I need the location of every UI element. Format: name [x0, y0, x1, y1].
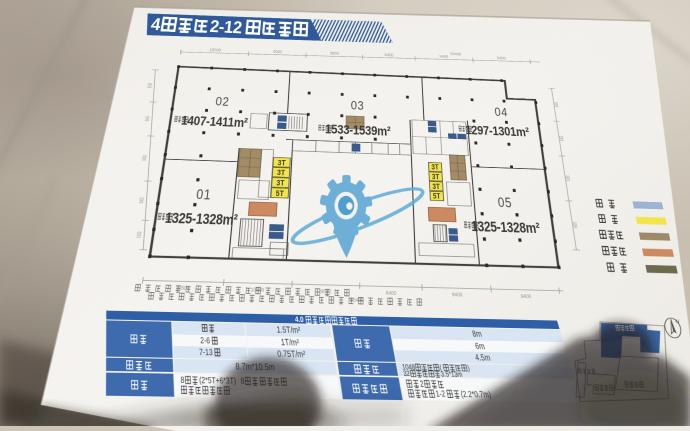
svg-text:1T/m²: 1T/m²: [280, 339, 299, 349]
svg-text:03: 03: [351, 99, 365, 113]
svg-text:55400: 55400: [350, 296, 364, 303]
svg-text:2-6: 2-6: [200, 337, 210, 347]
svg-text:3T: 3T: [431, 165, 439, 173]
svg-text:(2*5T+6*3T): (2*5T+6*3T): [199, 376, 237, 387]
svg-text:1297-1301m²: 1297-1301m²: [465, 124, 531, 140]
svg-text:8: 8: [240, 377, 245, 387]
svg-text:3T: 3T: [277, 159, 286, 168]
svg-text:8.7m*10.5m: 8.7m*10.5m: [235, 363, 275, 374]
svg-text:(2.2*0.7m): (2.2*0.7m): [460, 390, 493, 401]
svg-text:1325-1328m²: 1325-1328m²: [471, 219, 542, 237]
svg-text:8400: 8400: [137, 197, 146, 203]
svg-text:1.5T/m²: 1.5T/m²: [276, 326, 301, 336]
svg-text:8400: 8400: [140, 155, 148, 161]
svg-text:1407-1411m²: 1407-1411m²: [180, 114, 249, 131]
svg-text:8400: 8400: [143, 116, 151, 122]
svg-text:8400: 8400: [558, 136, 565, 141]
svg-text:4.5m: 4.5m: [474, 354, 492, 364]
svg-text:3T: 3T: [277, 169, 286, 178]
svg-text:3T: 3T: [432, 174, 440, 182]
svg-text:8400: 8400: [386, 289, 398, 296]
svg-text:5T: 5T: [433, 194, 441, 202]
svg-text:8400: 8400: [571, 222, 579, 228]
svg-text:5T: 5T: [275, 189, 284, 198]
svg-text:02: 02: [215, 95, 230, 109]
svg-text:8: 8: [180, 376, 184, 386]
svg-text:2-12: 2-12: [209, 17, 243, 37]
svg-text:7-13: 7-13: [199, 348, 213, 358]
svg-text:01: 01: [195, 187, 212, 203]
svg-text:3T: 3T: [276, 179, 285, 188]
svg-text:4.0: 4.0: [295, 316, 305, 326]
svg-text:9000: 9000: [273, 49, 283, 54]
svg-text:0.75T/m²: 0.75T/m²: [277, 350, 306, 360]
svg-text:55400: 55400: [450, 51, 462, 56]
svg-text:3T: 3T: [432, 184, 440, 192]
svg-text:9000: 9000: [330, 51, 340, 56]
svg-text:8400: 8400: [552, 102, 559, 107]
svg-text:1533-1539m²: 1533-1539m²: [325, 123, 391, 139]
svg-text:05: 05: [497, 196, 513, 212]
svg-text:3.5*13m: 3.5*13m: [440, 370, 463, 379]
svg-text:9400: 9400: [520, 292, 532, 299]
svg-text:9400: 9400: [452, 291, 464, 298]
svg-text:6150: 6150: [134, 231, 143, 237]
svg-text:9400: 9400: [497, 55, 507, 60]
svg-text:10500: 10500: [209, 47, 222, 52]
svg-text:6150: 6150: [564, 175, 572, 181]
svg-text:9000: 9000: [320, 287, 332, 294]
svg-text:8400: 8400: [384, 52, 394, 57]
svg-text:6150: 6150: [145, 83, 153, 88]
svg-text:04: 04: [494, 106, 509, 120]
svg-text:9400: 9400: [439, 54, 449, 59]
svg-text:1325-1328m²: 1325-1328m²: [164, 211, 239, 229]
